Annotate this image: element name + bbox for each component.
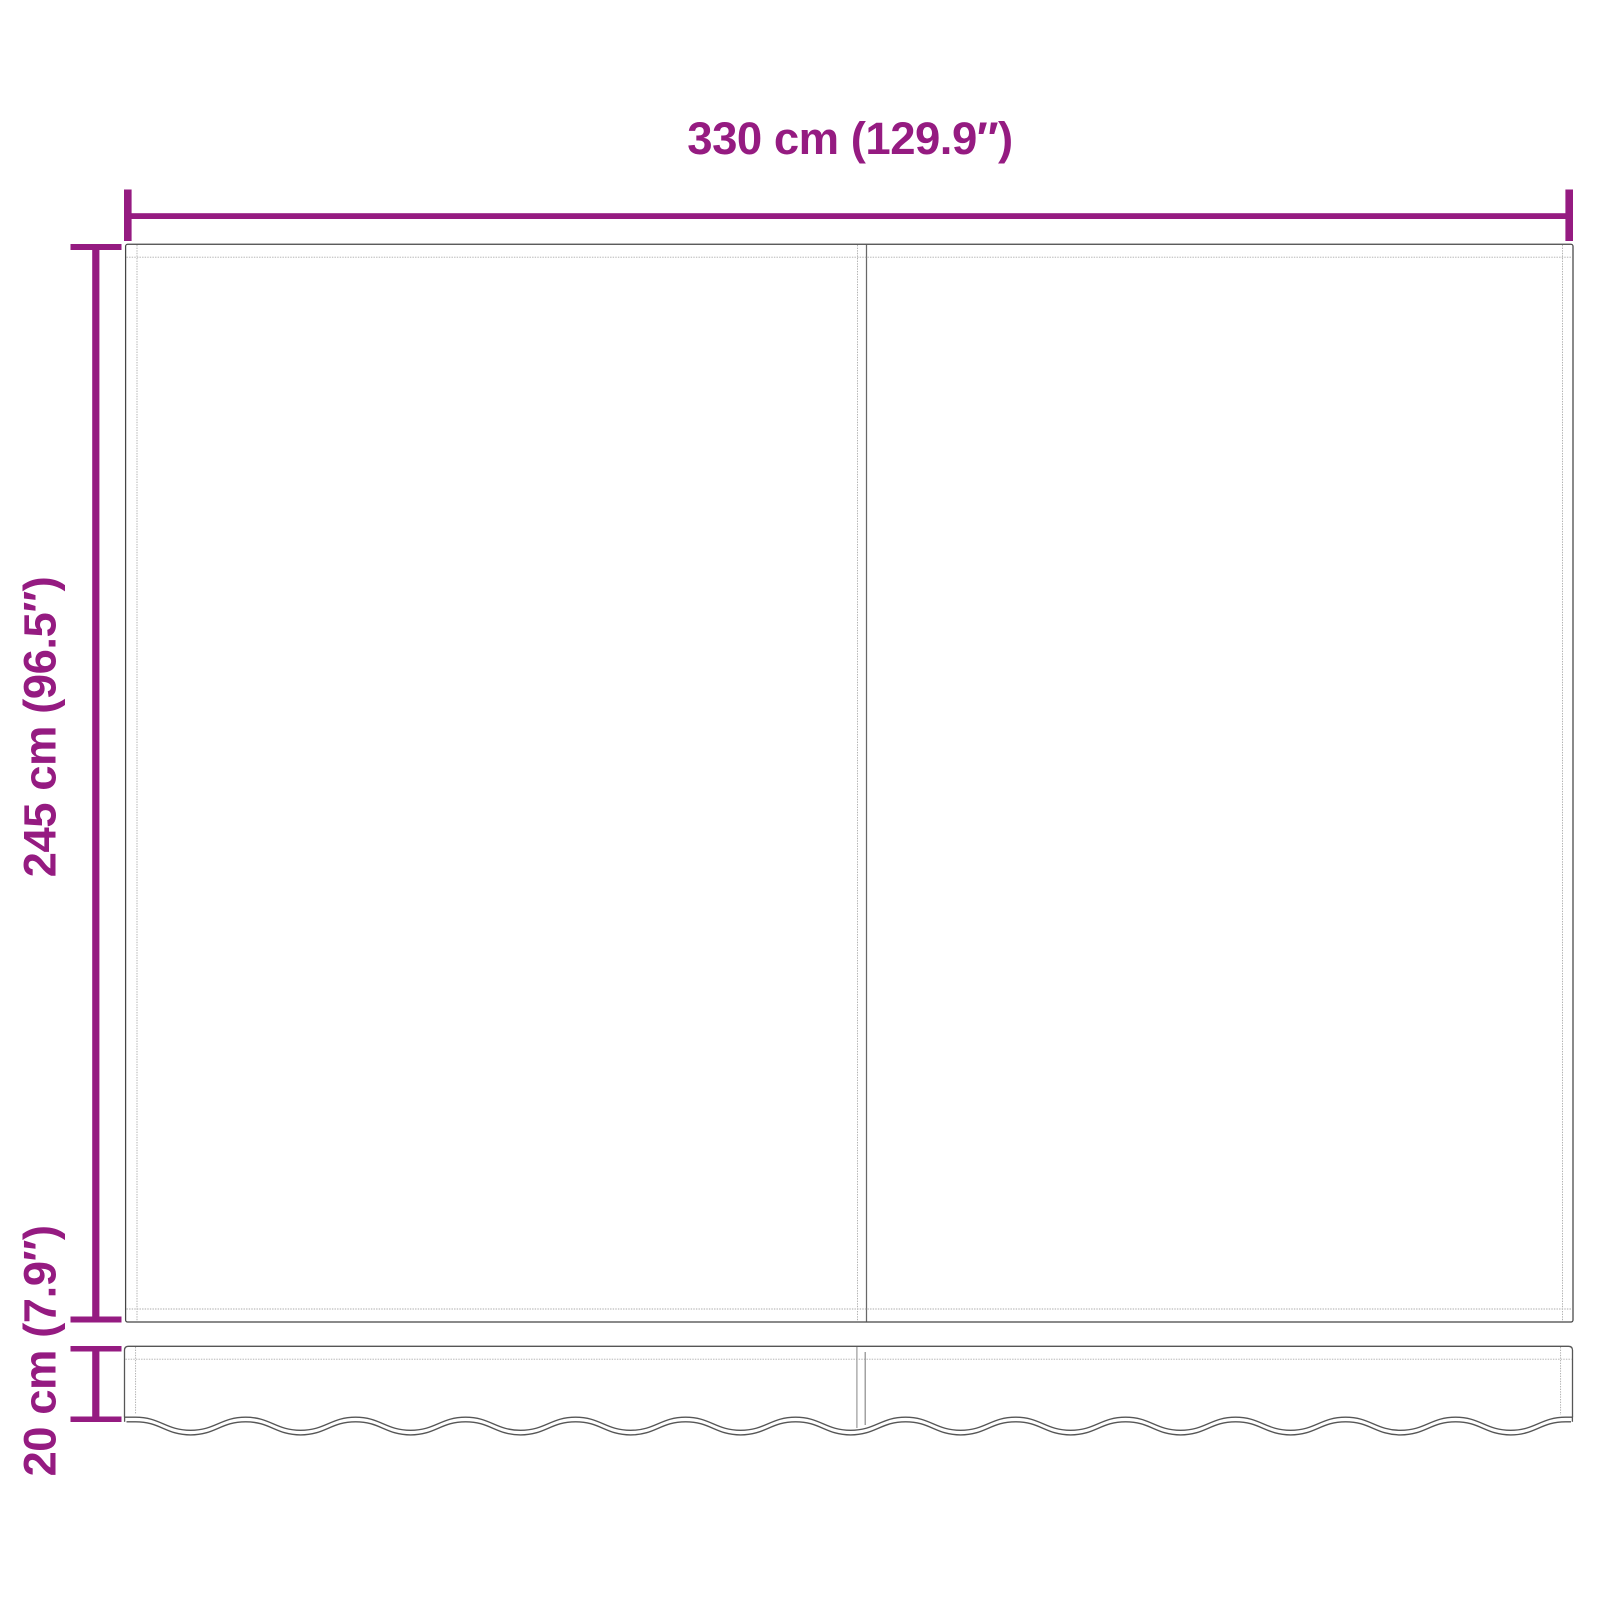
svg-text:245 cm (96.5″): 245 cm (96.5″) (15, 577, 66, 878)
svg-text:20 cm (7.9″): 20 cm (7.9″) (15, 1225, 66, 1476)
svg-text:330 cm (129.9″): 330 cm (129.9″) (687, 113, 1012, 164)
